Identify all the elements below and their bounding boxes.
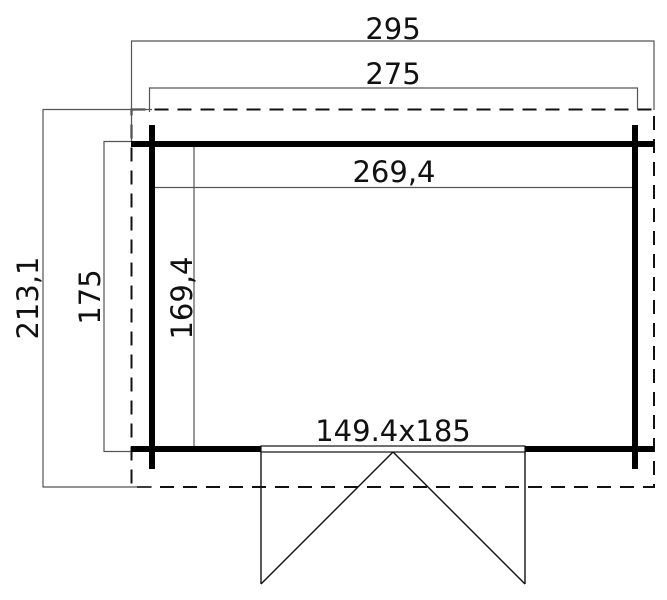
double-door <box>261 446 525 584</box>
door-swing-left <box>261 452 393 584</box>
floor-plan-page: 295 275 269,4 149.4x185 213,1 175 169,4 <box>0 0 667 600</box>
label-outer-width: 275 <box>365 57 420 91</box>
dim-line-outer-width <box>150 88 638 112</box>
label-door-size: 149.4x185 <box>315 414 471 448</box>
label-inner-width: 269,4 <box>352 155 435 189</box>
label-roof-depth: 213,1 <box>11 256 45 339</box>
door-swing-right <box>393 452 525 584</box>
label-inner-depth: 169,4 <box>165 256 199 339</box>
dim-line-roof-width <box>132 41 655 141</box>
wall-left <box>149 125 155 469</box>
label-outer-depth: 175 <box>73 269 107 324</box>
shed-floor-plan-drawing: 295 275 269,4 149.4x185 213,1 175 169,4 <box>0 0 667 600</box>
wall-back <box>131 141 654 147</box>
label-roof-width: 295 <box>365 12 420 46</box>
dimension-labels: 295 275 269,4 149.4x185 213,1 175 169,4 <box>11 12 471 448</box>
wall-right <box>632 125 638 469</box>
dim-line-outer-depth <box>104 142 131 452</box>
